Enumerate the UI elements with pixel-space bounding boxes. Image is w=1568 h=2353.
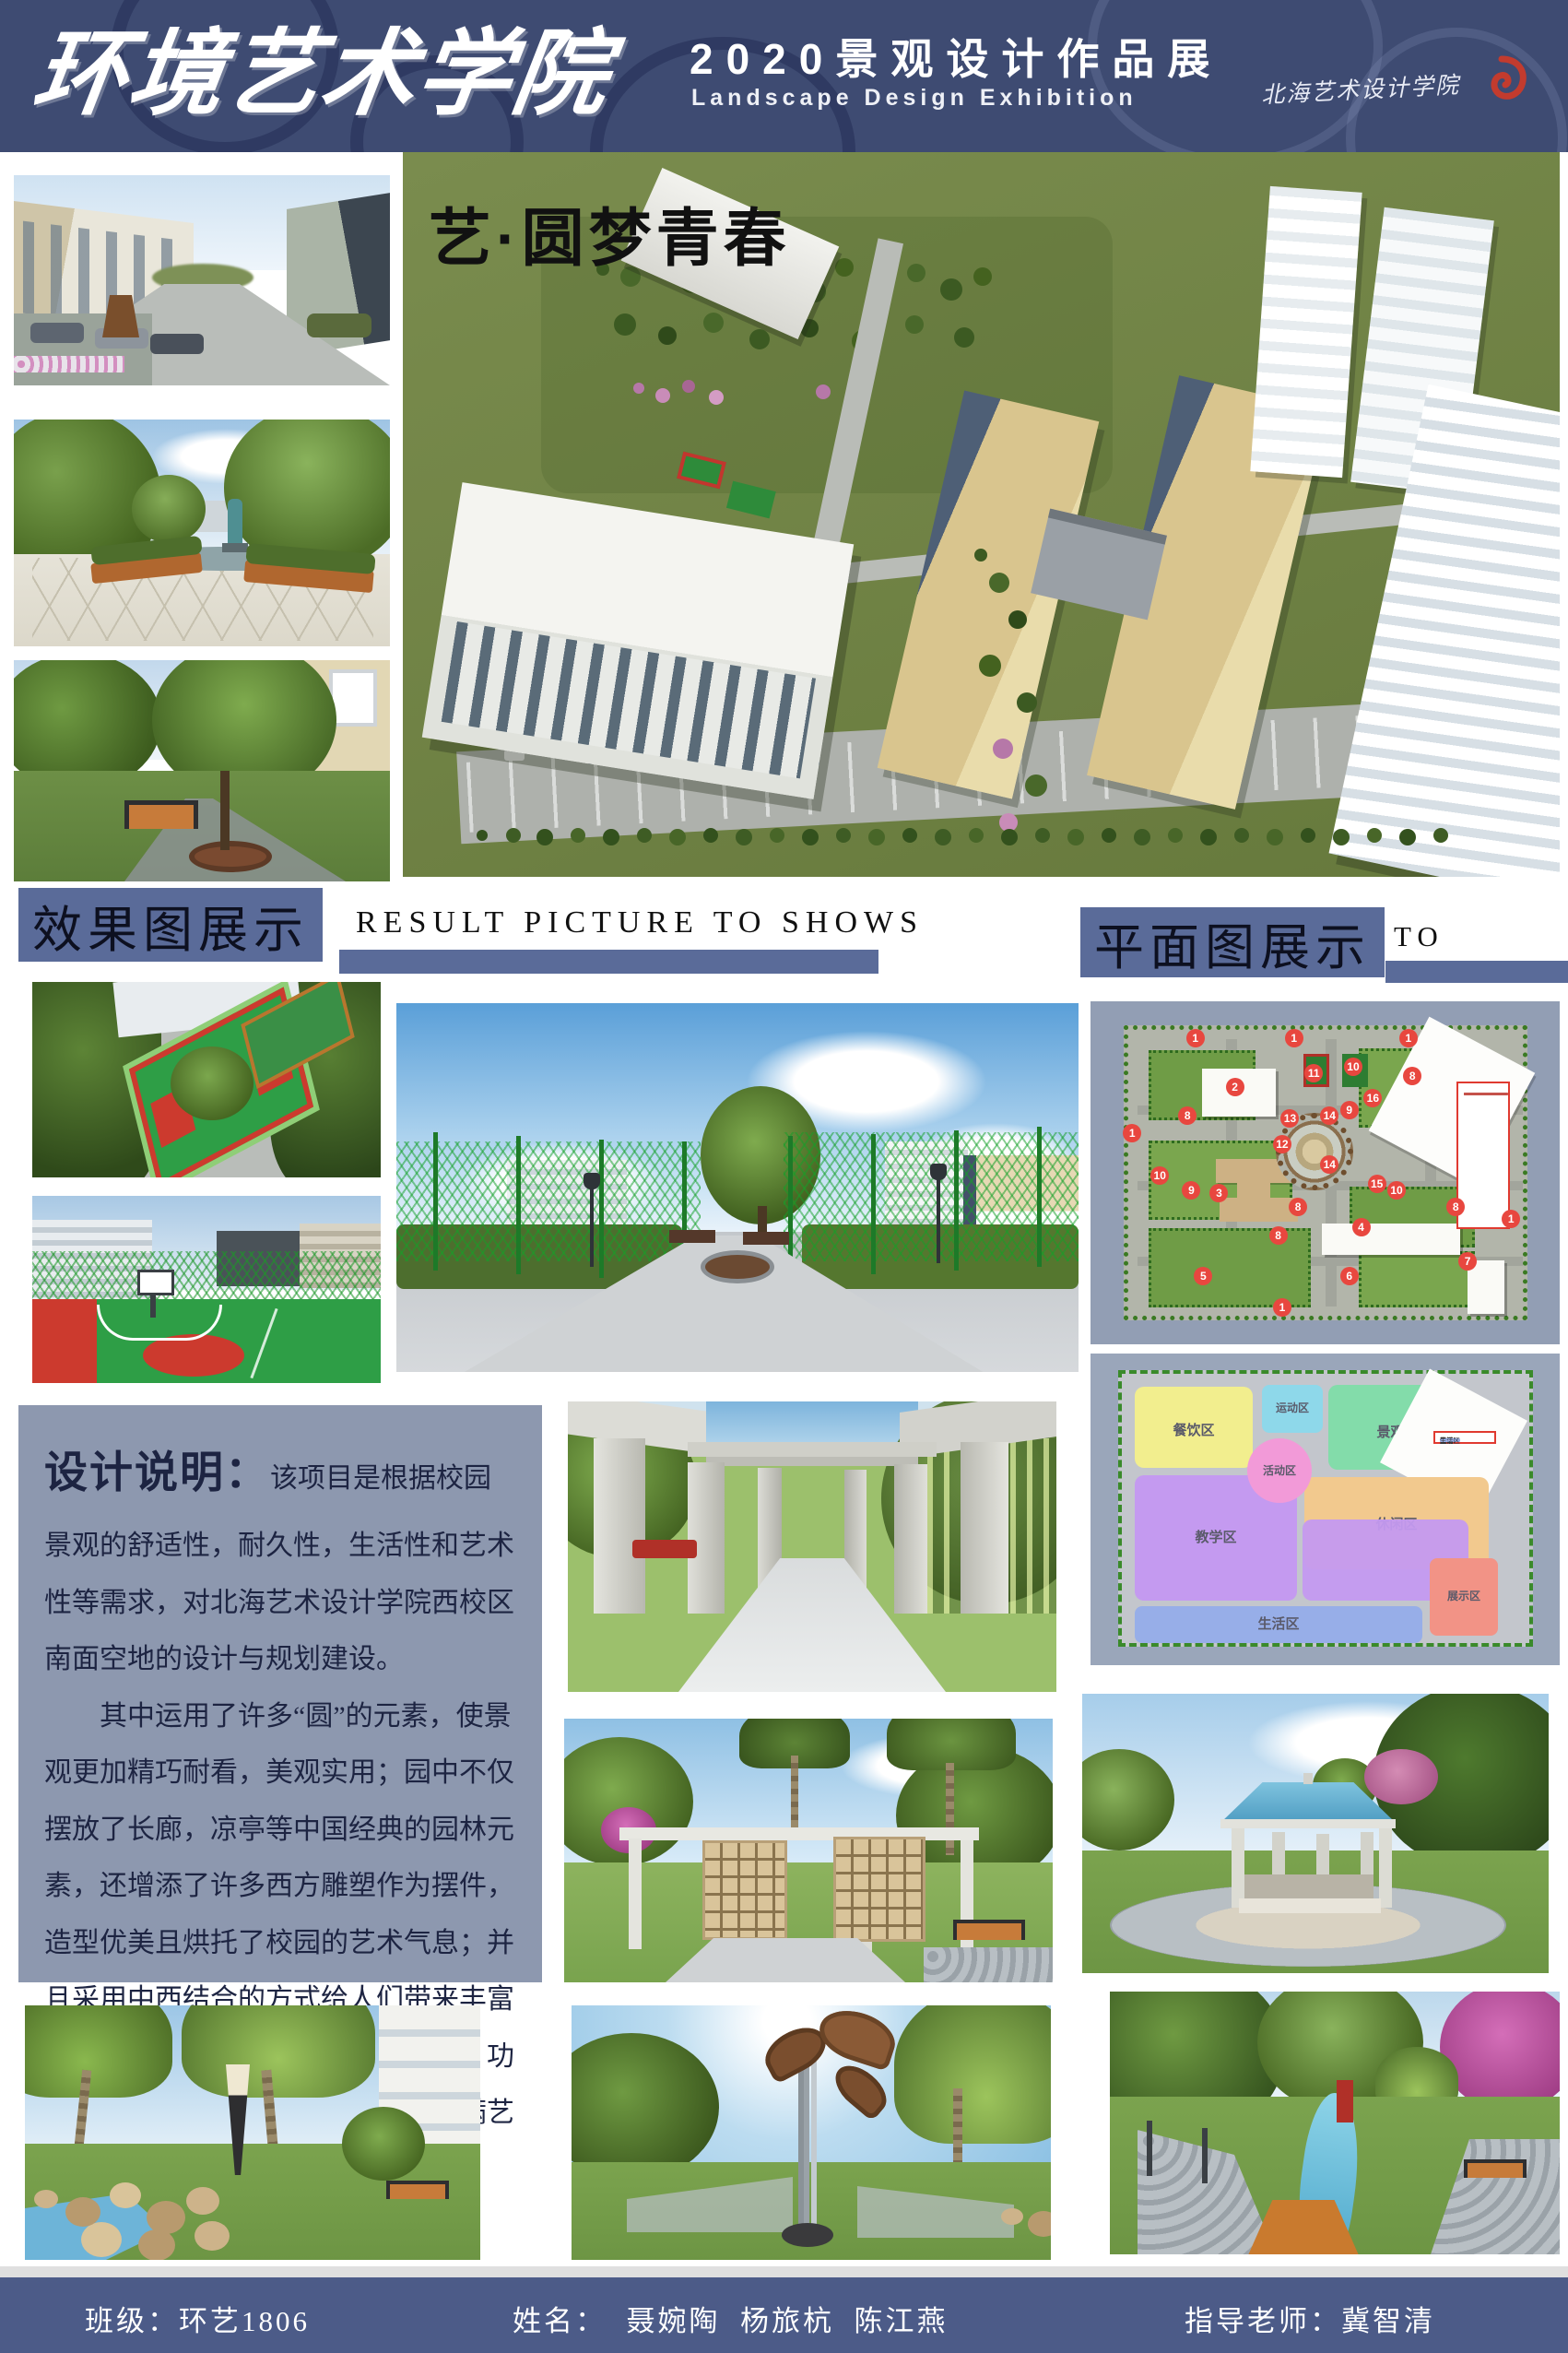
fence-posts	[1037, 1127, 1042, 1267]
gazebo-columns	[1232, 1828, 1244, 1908]
sculpture-stem	[804, 2061, 809, 2227]
plan-number-badge: 14	[1320, 1155, 1338, 1174]
plans-section-title-text: 平面图展示	[1094, 906, 1371, 979]
plan-number-badge: 15	[1368, 1175, 1386, 1193]
plan-number-badge: 8	[1289, 1198, 1307, 1216]
render-park-lawn-image	[14, 660, 390, 881]
plan-number-badge: 7	[1458, 1252, 1477, 1271]
sculpture-base	[782, 2223, 833, 2247]
zone-exhibit: 展示区	[1430, 1558, 1498, 1636]
pergola-posts	[1147, 2121, 1152, 2176]
school-logo-icon	[1473, 53, 1530, 111]
footer-class: 班级：环艺1806	[85, 2298, 310, 2339]
render-campus-street-image	[14, 175, 390, 385]
plan-number-badge: 9	[1182, 1181, 1200, 1200]
footer-names: 姓名： 聂婉陶 杨旅杭 陈江燕	[513, 2298, 949, 2339]
site-plan-canvas: 111111234567888889910101011121314141516	[1124, 1025, 1527, 1320]
gazebo-bench-wall	[1244, 1874, 1373, 1898]
footer-band: 班级：环艺1806 姓名： 聂婉陶 杨旅杭 陈江燕 指导老师：冀智清	[0, 2277, 1568, 2353]
creek-rocks	[34, 2190, 58, 2208]
tree	[171, 1046, 253, 1120]
palm-trunk	[791, 1756, 798, 1839]
site-plan-image: 111111234567888889910101011121314141516	[1091, 1001, 1560, 1344]
building-tower	[1250, 186, 1362, 478]
gazebo-floor	[1239, 1898, 1381, 1913]
zone-legend-label: 生活区	[1440, 1436, 1460, 1445]
design-note-paragraph1: 设计说明：该项目是根据校园景观的舒适性，耐久性，生活性和艺术性等需求，对北海艺术…	[44, 1429, 516, 1688]
plan-number-badge: 5	[1194, 1267, 1212, 1285]
benches	[669, 1230, 715, 1243]
footer-advisor: 指导老师：冀智清	[1185, 2298, 1435, 2339]
tree-planter	[189, 841, 272, 872]
gazebo-eave	[1220, 1819, 1396, 1828]
court-key-lines	[97, 1305, 222, 1341]
plan-number-badge: 10	[1150, 1166, 1169, 1185]
plan-number-badge: 10	[1387, 1181, 1406, 1200]
render-pergola-corridor-image	[568, 1401, 1056, 1692]
design-note-panel: 设计说明：该项目是根据校园景观的舒适性，耐久性，生活性和艺术性等需求，对北海艺术…	[18, 1405, 542, 1982]
plans-caption-bar	[1385, 961, 1568, 983]
tree-planter-seat	[701, 1250, 774, 1283]
court-red-lane	[32, 1299, 97, 1383]
render-fenced-walkway-image	[396, 1003, 1079, 1372]
statue	[228, 499, 242, 547]
site-plan-badges-layer: 111111234567888889910101011121314141516	[1128, 1030, 1523, 1316]
plan-number-badge: 8	[1446, 1198, 1465, 1216]
render-aerial-masterplan-image: 艺·圆梦青春	[403, 152, 1560, 877]
plan-number-badge: 12	[1273, 1135, 1291, 1153]
palm-canopy	[25, 2005, 172, 2098]
exhibition-subtitle: Landscape Design Exhibition	[691, 85, 1138, 112]
zone-exhibit-label: 展示区	[1430, 1588, 1498, 1603]
plan-number-badge: 9	[1340, 1101, 1359, 1119]
gazebo-finial	[1303, 1773, 1313, 1784]
plans-section-title: 平面图展示	[1080, 907, 1385, 977]
results-caption-bar	[339, 950, 878, 974]
results-section-title-text: 效果图展示	[32, 889, 309, 962]
plan-number-badge: 8	[1269, 1226, 1288, 1245]
pergola-cross-beam	[706, 1457, 918, 1466]
mesh-fence	[784, 1132, 1079, 1261]
render-gazebo-image	[1082, 1694, 1549, 1973]
stone-paving	[924, 1947, 1053, 1982]
mesh-fence	[396, 1141, 701, 1261]
zone-sports-label: 运动区	[1262, 1400, 1323, 1415]
plan-number-badge: 1	[1285, 1029, 1303, 1047]
poster-page: 环境艺术学院 2020景观设计作品展 Landscape Design Exhi…	[0, 0, 1568, 2353]
zone-activity-label: 活动区	[1247, 1462, 1312, 1478]
tree-trunk	[220, 771, 230, 850]
plan-number-badge: 11	[1304, 1064, 1323, 1082]
tree	[132, 475, 206, 543]
plan-number-badge: 14	[1320, 1106, 1338, 1125]
render-palm-creek-image	[25, 2005, 480, 2260]
zone-dining-label: 餐饮区	[1135, 1420, 1253, 1439]
plan-number-badge: 2	[1226, 1078, 1244, 1096]
exhibition-title: 2020景观设计作品展	[690, 26, 1222, 87]
render-stream-garden-image	[1110, 1992, 1560, 2254]
zone-sports: 运动区	[1262, 1385, 1323, 1433]
palm-canopy	[182, 2005, 375, 2098]
bench	[1464, 2159, 1527, 2178]
render-statue-plaza-image	[14, 420, 390, 646]
plan-number-badge: 1	[1273, 1298, 1291, 1317]
render-court-close-image	[32, 1196, 381, 1383]
design-note-title: 设计说明：	[44, 1449, 270, 1497]
plan-number-badge: 10	[1344, 1058, 1362, 1076]
fence-posts	[433, 1132, 438, 1271]
zone-living-label: 生活区	[1135, 1614, 1422, 1633]
backboard	[137, 1270, 174, 1295]
plan-number-badge: 6	[1340, 1267, 1359, 1285]
pergola-columns	[629, 1839, 642, 1949]
plan-number-badge: 1	[1502, 1210, 1520, 1228]
plan-number-badge: 4	[1352, 1218, 1371, 1236]
school-calligraphy-title: 环境艺术学院	[26, 0, 635, 134]
pergola-cross-beam	[688, 1442, 937, 1457]
lamp-head	[584, 1173, 600, 1189]
results-section-caption: RESULT PICTURE TO SHOWS	[356, 905, 924, 940]
plan-number-badge: 8	[1178, 1106, 1197, 1125]
zone-living: 生活区	[1135, 1606, 1422, 1643]
car	[30, 323, 84, 343]
hero-slogan: 艺·圆梦青春	[429, 187, 791, 278]
results-section-title: 效果图展示	[18, 888, 323, 962]
zone-plan-canvas: 餐饮区 运动区 景观区 休闲区 教学区 活动区 生活区 展示区 餐饮区运动区景观…	[1118, 1370, 1533, 1647]
palm-trunk	[946, 1763, 954, 1855]
lattice-panel	[833, 1837, 925, 1942]
plan-number-badge: 1	[1186, 1029, 1205, 1047]
render-leaf-sculpture-image	[572, 2005, 1051, 2260]
bench	[953, 1920, 1025, 1940]
zone-dining: 餐饮区	[1135, 1387, 1253, 1468]
flower-bed	[14, 356, 124, 372]
plan-number-badge: 13	[1280, 1109, 1299, 1128]
plan-number-badge: 1	[1399, 1029, 1418, 1047]
header-band: 环境艺术学院 2020景观设计作品展 Landscape Design Exhi…	[0, 0, 1568, 152]
plan-number-badge: 3	[1209, 1184, 1228, 1202]
hedge	[307, 313, 371, 337]
rocks	[1001, 2208, 1023, 2225]
perimeter-trees	[477, 830, 488, 841]
zone-teaching-label: 教学区	[1135, 1527, 1297, 1546]
zone-activity: 活动区	[1247, 1438, 1312, 1503]
zone-plan-image: 餐饮区 运动区 景观区 休闲区 教学区 活动区 生活区 展示区 餐饮区运动区景观…	[1091, 1354, 1560, 1665]
bench	[124, 800, 198, 829]
zone-plan-legend: 餐饮区运动区景观区活动区教学区休闲区展示区生活区	[1433, 1431, 1496, 1444]
tree-cluster	[974, 549, 987, 562]
red-feature	[1337, 2080, 1353, 2122]
bench	[386, 2181, 449, 2199]
plan-number-badge: 16	[1363, 1089, 1382, 1107]
red-bench	[632, 1540, 697, 1558]
palm-canopy	[894, 2005, 1051, 2144]
render-courts-aerial-image	[32, 982, 381, 1177]
flower-cluster	[633, 383, 644, 394]
lattice-panel	[702, 1840, 787, 1940]
lamp-head	[930, 1164, 947, 1180]
footer-divider	[0, 2266, 1568, 2277]
statue-pedestal	[222, 543, 248, 552]
lamp-post	[590, 1184, 594, 1267]
render-pergola-trellis-image	[564, 1719, 1053, 1982]
plan-number-badge: 1	[1123, 1124, 1141, 1142]
tree	[342, 2107, 425, 2181]
plan-number-badge: 8	[1403, 1067, 1421, 1085]
blossom-tree	[1364, 1749, 1438, 1804]
lamp-post	[937, 1175, 940, 1263]
